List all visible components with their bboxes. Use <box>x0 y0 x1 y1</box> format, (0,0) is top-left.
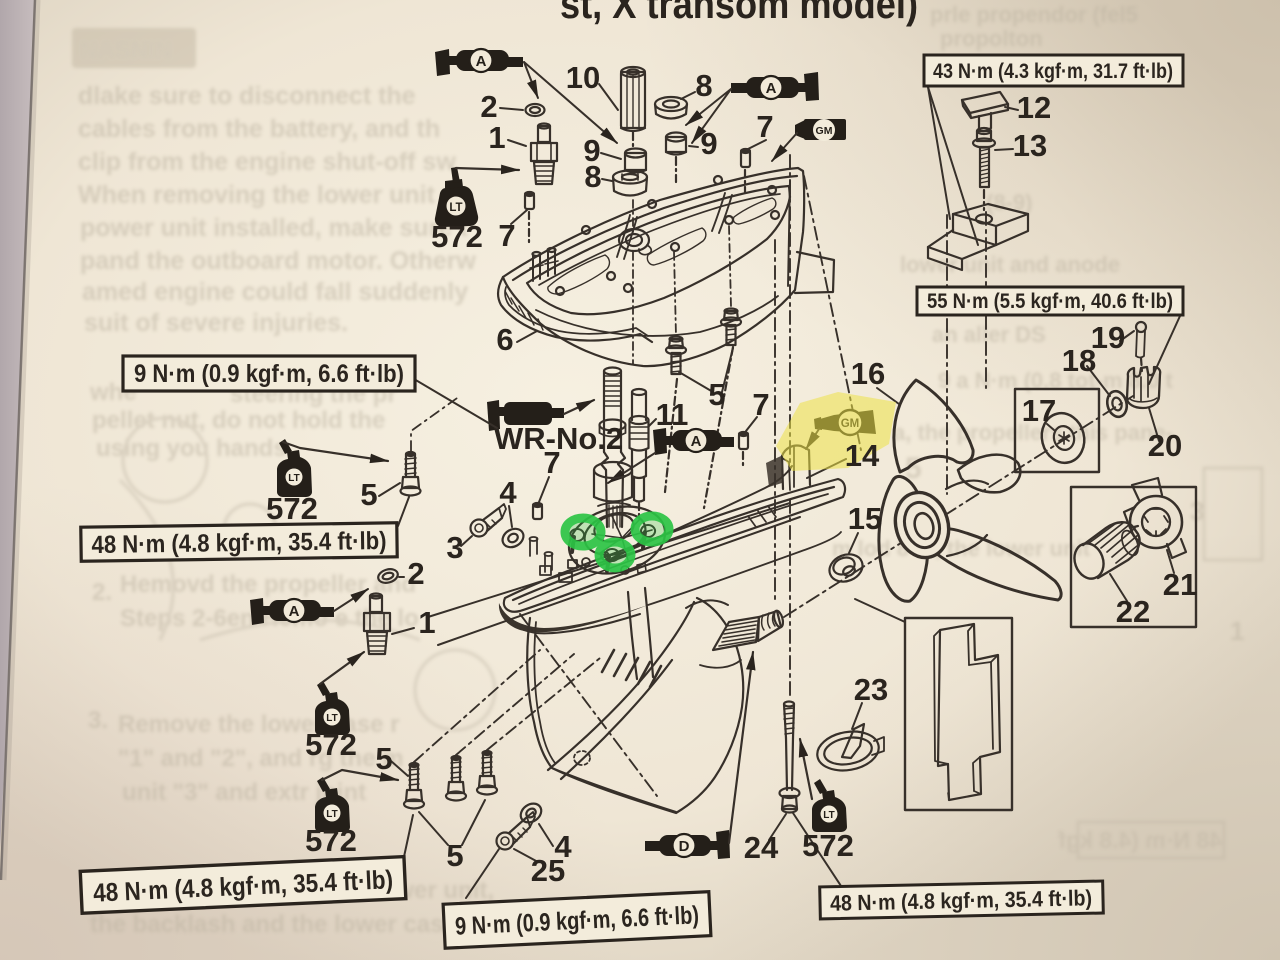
svg-text:24: 24 <box>744 830 779 865</box>
svg-text:3: 3 <box>1190 496 1204 526</box>
svg-text:8: 8 <box>584 159 601 194</box>
svg-text:LT: LT <box>326 713 337 724</box>
svg-text:572: 572 <box>802 828 854 863</box>
svg-text:13: 13 <box>1013 128 1047 163</box>
svg-text:5: 5 <box>360 477 377 512</box>
svg-text:(8-9): (8-9) <box>986 190 1032 215</box>
svg-text:Remove the lower case r: Remove the lower case r <box>118 711 399 738</box>
svg-text:14: 14 <box>845 438 880 473</box>
svg-text:cables from the battery, and t: cables from the battery, and th <box>78 115 440 143</box>
svg-text:lower unit and anode: lower unit and anode <box>900 252 1120 277</box>
svg-text:15: 15 <box>848 501 882 536</box>
svg-text:GM: GM <box>816 125 833 137</box>
svg-text:the backlash and the lower cas: the backlash and the lower case <box>90 911 457 938</box>
svg-text:2: 2 <box>407 556 424 591</box>
svg-text:7: 7 <box>498 218 515 253</box>
svg-text:48 N·m (4.8 kgf: 48 N·m (4.8 kgf <box>1058 827 1222 853</box>
svg-text:20: 20 <box>1148 428 1182 463</box>
svg-text:12: 12 <box>1017 90 1051 125</box>
svg-text:572: 572 <box>305 823 357 858</box>
svg-text:572: 572 <box>431 219 483 254</box>
svg-text:5: 5 <box>375 741 392 776</box>
svg-text:3: 3 <box>446 530 463 565</box>
svg-text:4: 4 <box>554 829 572 864</box>
svg-text:16: 16 <box>851 356 885 391</box>
svg-text:11: 11 <box>656 397 689 432</box>
svg-text:propolton: propolton <box>940 26 1043 51</box>
svg-text:pand the outboard motor. Other: pand the outboard motor. Otherw <box>80 247 476 275</box>
svg-text:17: 17 <box>1022 393 1056 428</box>
svg-text:2.: 2. <box>92 579 112 606</box>
svg-text:power unit installed, make sur: power unit installed, make sure t <box>80 214 468 242</box>
svg-text:LT: LT <box>326 809 337 820</box>
svg-text:6: 6 <box>496 322 513 357</box>
svg-text:LT: LT <box>823 810 834 821</box>
svg-text:21: 21 <box>1163 567 1197 602</box>
svg-text:43 N·m (4.3 kgf·m, 31.7 ft·lb): 43 N·m (4.3 kgf·m, 31.7 ft·lb) <box>933 60 1173 83</box>
svg-text:NASNIN: NASNIN <box>80 37 172 64</box>
svg-text:m lod 8 ta, the lower unit: m lod 8 ta, the lower unit <box>832 536 1091 561</box>
svg-text:dlake sure to disconnect the: dlake sure to disconnect the <box>78 82 416 110</box>
svg-text:48 N·m (4.8 kgf·m, 35.4 ft·lb): 48 N·m (4.8 kgf·m, 35.4 ft·lb) <box>91 527 386 559</box>
svg-text:572: 572 <box>266 491 318 526</box>
svg-text:an aller DS: an aller DS <box>932 322 1046 347</box>
svg-text:55 N·m (5.5 kgf·m, 40.6 ft·lb): 55 N·m (5.5 kgf·m, 40.6 ft·lb) <box>927 290 1173 313</box>
svg-text:prle propendor (fel5: prle propendor (fel5 <box>930 2 1138 27</box>
svg-text:9: 9 <box>700 126 717 161</box>
svg-text:5: 5 <box>708 377 725 412</box>
svg-text:suit of severe injuries.: suit of severe injuries. <box>84 309 348 337</box>
svg-text:7: 7 <box>752 387 769 422</box>
svg-text:22: 22 <box>1116 594 1150 629</box>
svg-text:st, X transom model): st, X transom model) <box>560 0 918 27</box>
svg-text:7: 7 <box>756 109 773 144</box>
svg-text:amed engine could fall suddenl: amed engine could fall suddenly <box>82 278 468 306</box>
svg-text:10: 10 <box>566 60 600 95</box>
svg-text:5: 5 <box>446 838 463 873</box>
svg-text:When removing the lower unit w: When removing the lower unit w <box>78 181 462 209</box>
svg-text:D: D <box>679 838 690 855</box>
svg-text:18: 18 <box>1062 343 1096 378</box>
svg-text:A: A <box>766 80 777 97</box>
svg-text:1: 1 <box>1230 616 1244 646</box>
svg-text:1: 1 <box>418 605 435 640</box>
svg-text:8: 8 <box>695 68 712 103</box>
svg-text:23: 23 <box>854 672 888 707</box>
svg-text:A: A <box>691 433 702 450</box>
svg-text:A: A <box>476 53 487 70</box>
svg-text:9 N·m (0.9 kgf·m, 6.6 ft·lb): 9 N·m (0.9 kgf·m, 6.6 ft·lb) <box>134 360 404 388</box>
svg-text:clip from the engine shut-off: clip from the engine shut-off sw <box>78 148 456 176</box>
svg-text:4: 4 <box>499 475 517 510</box>
svg-text:7: 7 <box>543 445 560 480</box>
svg-text:A: A <box>289 603 300 620</box>
svg-text:LT: LT <box>449 202 462 214</box>
svg-text:572: 572 <box>305 727 357 762</box>
svg-text:2: 2 <box>480 89 497 124</box>
svg-text:1: 1 <box>488 120 505 155</box>
svg-text:LT: LT <box>288 473 299 484</box>
svg-text:"1" and "2", and rg the m: "1" and "2", and rg the m <box>118 745 404 772</box>
svg-text:3.: 3. <box>88 707 108 734</box>
